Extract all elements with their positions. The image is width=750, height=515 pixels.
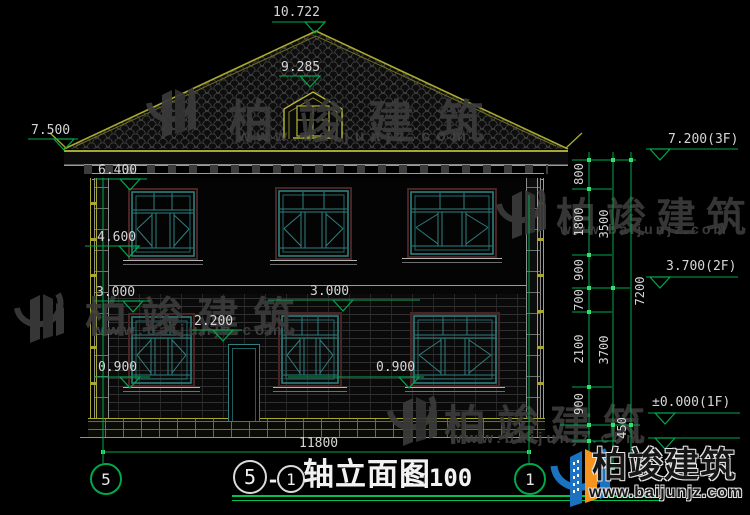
level-label: 9.285 <box>281 61 320 74</box>
watermark-url: www.baijunjz.com <box>92 322 285 339</box>
level-label: ±0.000(1F) <box>652 396 730 409</box>
dimension-label: 900 <box>573 393 585 415</box>
level-label: 0.900 <box>376 361 415 374</box>
window <box>128 188 198 260</box>
window <box>410 312 500 387</box>
watermark-url: www.baijunjz.com <box>238 128 472 146</box>
dimension-label: 800 <box>573 163 585 185</box>
level-label: 6.400 <box>98 164 137 177</box>
watermark-logo-icon <box>381 390 447 456</box>
watermark-logo-icon <box>140 82 206 148</box>
cad-elevation-drawing: 柏竣建筑 www.baijunjz.com 柏竣建筑 www.baijunjz.… <box>0 0 750 515</box>
level-label: 7.500 <box>31 124 70 137</box>
dimension-label: 2100 <box>573 335 585 364</box>
entry-door <box>228 344 260 422</box>
watermark-logo-icon <box>8 287 74 353</box>
watermark-logo-icon <box>490 183 556 249</box>
axis-bubble-5: 5 <box>90 463 122 495</box>
door-panel <box>232 348 256 421</box>
level-label: 4.600 <box>97 231 136 244</box>
level-label: 7.200(3F) <box>668 133 738 146</box>
window-sill <box>402 258 502 263</box>
level-label: 3.700(2F) <box>666 260 736 273</box>
drawing-scale: 1:100 <box>400 464 472 492</box>
level-label: 2.200 <box>194 315 233 328</box>
dimension-label: 450 <box>616 417 628 439</box>
title-axis-circle-5: 5 <box>233 460 267 494</box>
width-dimension-label: 11800 <box>299 437 338 450</box>
dimension-label: 3700 <box>598 336 610 365</box>
window-sill <box>273 387 347 392</box>
dimension-label: 900 <box>573 259 585 281</box>
title-axis-circle-1: 1 <box>277 465 305 493</box>
dimension-label: 700 <box>573 289 585 311</box>
brand-site: www.baijunjz.com <box>589 484 743 502</box>
window-sill <box>270 260 357 265</box>
level-label: 3.000 <box>310 285 349 298</box>
brand-name: 柏竣建筑 <box>592 448 736 484</box>
dimension-label: 1800 <box>573 208 585 237</box>
level-label: 0.900 <box>98 361 137 374</box>
window-sill <box>123 260 203 265</box>
dimension-label: 7200 <box>634 277 646 306</box>
level-label: 10.722 <box>273 6 320 19</box>
window-sill <box>123 387 200 392</box>
dimension-label: 3500 <box>598 210 610 239</box>
level-label: 3.000 <box>96 286 135 299</box>
window <box>275 187 352 260</box>
window <box>407 188 497 258</box>
